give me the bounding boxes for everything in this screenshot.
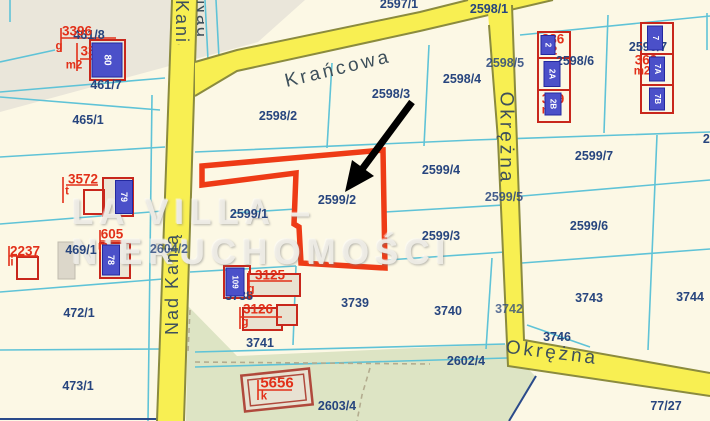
building-plate: 79: [115, 180, 133, 214]
parcel-label: 2599/1: [230, 208, 268, 221]
building-annotation: g: [55, 41, 62, 53]
pointer-arrow-icon: [345, 102, 412, 192]
building-plate: 109: [226, 268, 245, 297]
parcel-label: 472/1: [63, 307, 94, 320]
building-annotation: 3125: [255, 268, 285, 282]
building-plate: 2: [541, 35, 556, 55]
parcel-label: 2599/7: [575, 150, 613, 163]
parcel-label: 2602/4: [447, 355, 485, 368]
parcel-label: 2598/1: [470, 3, 508, 16]
parcel-label: 2598/5: [486, 57, 524, 70]
building-annotation: 5656: [260, 376, 293, 391]
building-annotation: 2237: [10, 244, 40, 258]
parcel-label: 77/27: [650, 400, 681, 413]
cadastral-map: LA VILLA – NIERUCHOMOŚCI Nad Kanią Krańc…: [0, 0, 710, 421]
parcel-label: 3743: [575, 292, 603, 305]
parcel-label: 2598/4: [443, 73, 481, 86]
parcel-label: 3742: [495, 303, 523, 316]
parcel-label: 461/7: [90, 79, 121, 92]
parcel-label: 2598/3: [372, 88, 410, 101]
parcel-label: 473/1: [62, 380, 93, 393]
parcel-label: 2603/4: [318, 400, 356, 413]
building-annotation: m2: [634, 66, 651, 78]
building-plate: 7: [647, 26, 663, 51]
parcel-label: 2598/2: [259, 110, 297, 123]
parcel-label: 2604/2: [150, 243, 188, 256]
building-plate: 2A: [544, 61, 561, 87]
parcel-label: 3739: [341, 297, 369, 310]
parcel-label: 2599/3: [422, 230, 460, 243]
parcel-label: 3740: [434, 305, 462, 318]
building-annotation: m2: [66, 60, 83, 72]
parcel-label: 2597/1: [380, 0, 418, 10]
parcel-label: 3741: [246, 337, 274, 350]
building-annotation: 605: [101, 227, 124, 241]
building-annotation: 3572: [68, 172, 98, 186]
building-plate: 7A: [649, 57, 665, 82]
building-plate: 80: [92, 43, 123, 78]
building-plate: 7B: [649, 88, 665, 111]
building-annotation: 3126: [243, 302, 273, 316]
parcel-label: 2599/8: [703, 133, 710, 146]
building-plate: 78: [102, 245, 120, 276]
parcel-label: 3746: [543, 331, 571, 344]
parcel-label: 465/1: [72, 114, 103, 127]
parcel-label: 469/1: [65, 244, 96, 257]
parcel-label: 2599/6: [570, 220, 608, 233]
parcel-label: 3744: [676, 291, 704, 304]
parcel-label: 2599/4: [422, 164, 460, 177]
street-label-okrezna-vertical: Okrężna: [497, 92, 516, 185]
building-annotation: 3396: [62, 24, 92, 38]
building-annotation: t: [65, 186, 69, 198]
building-annotation: i: [10, 257, 13, 269]
parcel-label: 2598/6: [556, 55, 594, 68]
building-annotation: k: [261, 391, 267, 403]
building-annotation: g: [241, 317, 248, 329]
parcel-label: 2599/2: [318, 194, 356, 207]
street-label-nad-kania-top: Nad Kanią: [170, 0, 204, 45]
building-plate: 2B: [545, 93, 562, 116]
building-annotation: g: [247, 284, 254, 296]
parcel-label: 2599/5: [485, 191, 523, 204]
